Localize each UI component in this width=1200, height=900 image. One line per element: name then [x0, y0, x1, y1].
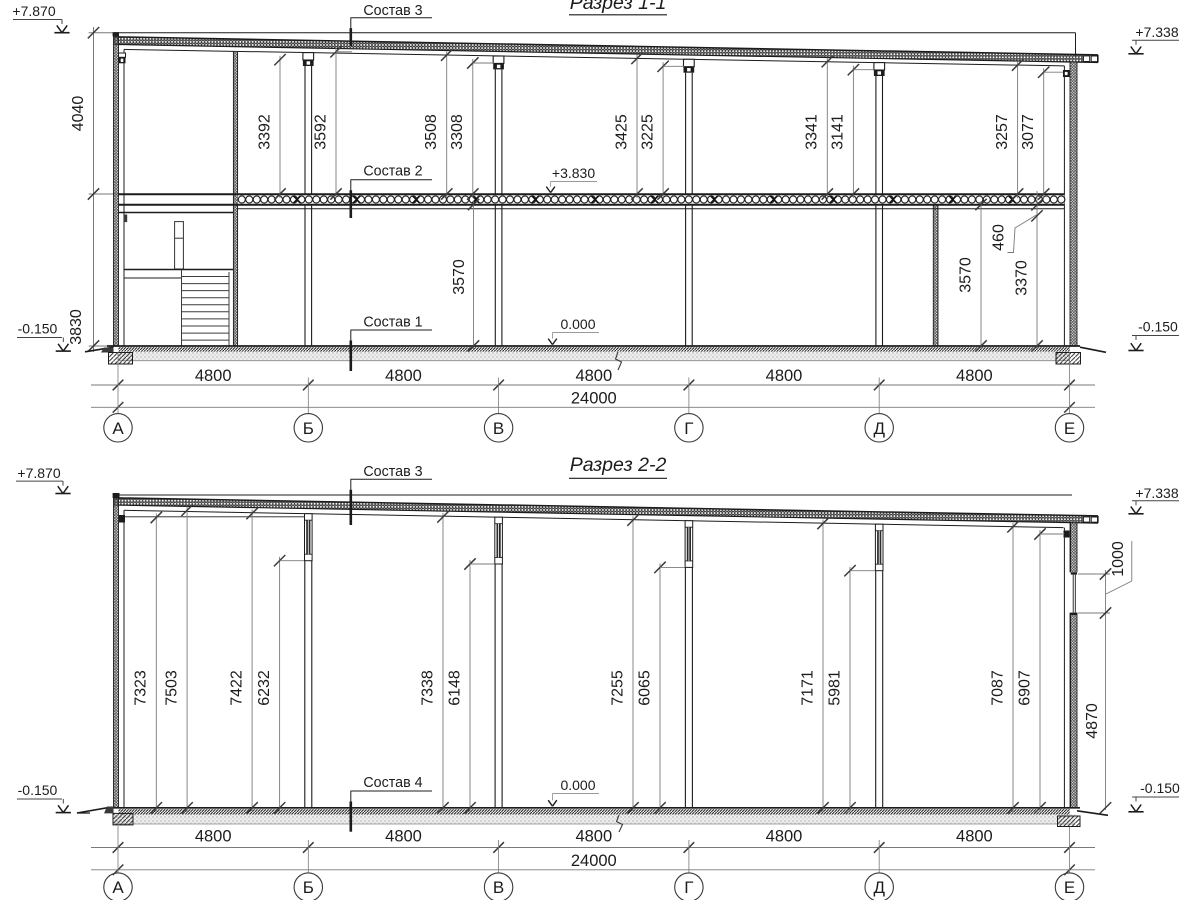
svg-text:24000: 24000: [571, 852, 617, 870]
svg-text:Е: Е: [1064, 419, 1075, 438]
svg-text:Состав 3: Состав 3: [363, 464, 422, 480]
svg-text:Разрез 1-1: Разрез 1-1: [570, 0, 667, 14]
svg-text:4800: 4800: [575, 828, 612, 846]
svg-text:3425: 3425: [613, 114, 630, 150]
svg-text:4800: 4800: [575, 367, 612, 385]
svg-text:3570: 3570: [957, 257, 974, 293]
svg-text:7087: 7087: [989, 670, 1006, 706]
svg-text:Состав 2: Состав 2: [363, 164, 422, 180]
svg-text:В: В: [493, 419, 504, 438]
svg-text:А: А: [112, 419, 124, 438]
svg-text:3141: 3141: [830, 114, 847, 150]
svg-text:Д: Д: [873, 419, 885, 438]
svg-text:7171: 7171: [799, 670, 816, 706]
svg-text:3077: 3077: [1020, 114, 1037, 150]
svg-text:Д: Д: [873, 878, 885, 897]
svg-text:7338: 7338: [419, 670, 436, 706]
svg-text:5981: 5981: [826, 670, 843, 706]
svg-text:0.000: 0.000: [560, 777, 595, 793]
svg-text:Б: Б: [303, 419, 314, 438]
svg-text:4800: 4800: [956, 828, 993, 846]
svg-text:3392: 3392: [256, 114, 273, 150]
svg-text:+7.338: +7.338: [1135, 485, 1178, 501]
svg-text:7255: 7255: [609, 670, 626, 706]
svg-text:0.000: 0.000: [560, 316, 595, 332]
svg-text:3592: 3592: [312, 114, 329, 150]
svg-text:3257: 3257: [994, 114, 1011, 150]
svg-text:4800: 4800: [385, 828, 422, 846]
svg-text:Разрез 2-2: Разрез 2-2: [570, 454, 667, 476]
svg-text:460: 460: [991, 224, 1008, 251]
svg-text:6148: 6148: [446, 670, 463, 706]
svg-text:24000: 24000: [571, 390, 617, 408]
svg-text:4800: 4800: [385, 367, 422, 385]
svg-text:7503: 7503: [163, 670, 180, 706]
svg-text:4800: 4800: [195, 828, 232, 846]
svg-text:А: А: [112, 878, 124, 897]
svg-text:Состав 4: Состав 4: [363, 775, 422, 791]
svg-text:7323: 7323: [133, 670, 150, 706]
svg-text:-0.150: -0.150: [18, 782, 58, 798]
svg-text:Г: Г: [684, 878, 693, 897]
svg-text:+7.338: +7.338: [1135, 24, 1178, 40]
svg-text:3370: 3370: [1013, 260, 1030, 296]
svg-text:-0.150: -0.150: [1138, 319, 1178, 335]
svg-text:+7.870: +7.870: [12, 3, 55, 19]
svg-text:3225: 3225: [639, 114, 656, 150]
svg-text:4800: 4800: [956, 367, 993, 385]
svg-text:3508: 3508: [423, 114, 440, 150]
svg-text:+3.830: +3.830: [552, 165, 595, 181]
svg-text:4800: 4800: [766, 828, 803, 846]
svg-text:6065: 6065: [636, 670, 653, 706]
svg-text:Е: Е: [1064, 878, 1075, 897]
svg-text:Б: Б: [303, 878, 314, 897]
svg-text:3308: 3308: [449, 114, 466, 150]
svg-text:Состав 3: Состав 3: [363, 3, 422, 19]
svg-text:+7.870: +7.870: [17, 465, 60, 481]
svg-text:-0.150: -0.150: [18, 321, 58, 337]
svg-text:4800: 4800: [766, 367, 803, 385]
svg-text:-0.150: -0.150: [1140, 780, 1180, 796]
svg-text:6232: 6232: [256, 670, 273, 706]
svg-text:3830: 3830: [68, 309, 85, 345]
svg-text:Состав 1: Состав 1: [363, 315, 422, 331]
svg-text:4870: 4870: [1084, 703, 1101, 739]
svg-text:3570: 3570: [451, 259, 468, 295]
svg-text:1000: 1000: [1110, 541, 1127, 577]
svg-text:Г: Г: [684, 419, 693, 438]
svg-text:4040: 4040: [70, 96, 87, 132]
svg-text:7422: 7422: [228, 670, 245, 706]
svg-text:6907: 6907: [1016, 670, 1033, 706]
svg-text:3341: 3341: [804, 114, 821, 150]
svg-text:4800: 4800: [195, 367, 232, 385]
svg-text:В: В: [493, 878, 504, 897]
